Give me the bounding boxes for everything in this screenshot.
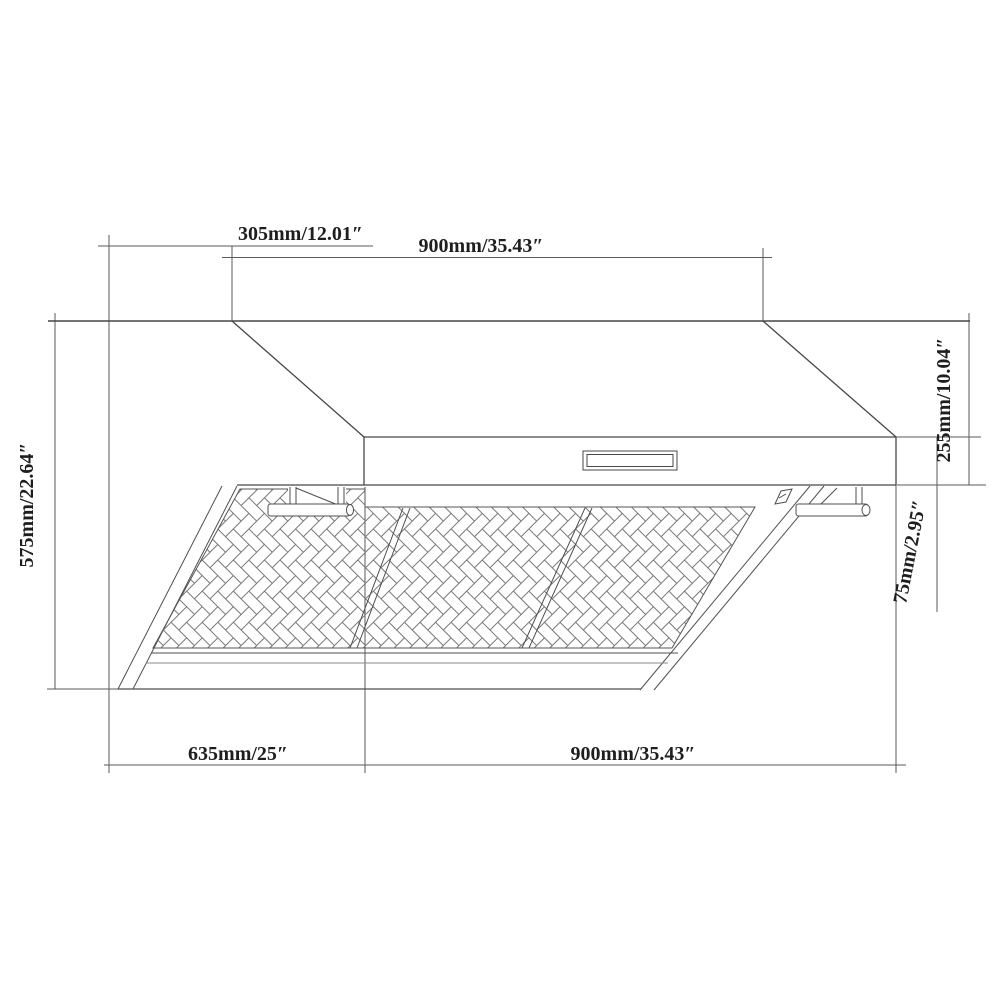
dimension-labels: 305mm/12.01″ 900mm/35.43″ 575mm/22.64″ 2… <box>16 223 955 765</box>
right-handle-rod-cap <box>862 505 870 516</box>
canopy-left-slope <box>232 321 364 437</box>
dim-label-bottom-depth: 635mm/25″ <box>188 743 288 765</box>
control-panel-cutout-inner <box>587 455 673 467</box>
right-bracket-posts <box>856 487 862 505</box>
dim-label-top-offset: 305mm/12.01″ <box>238 223 363 245</box>
right-handle-rod <box>796 504 868 516</box>
drawing-svg: 305mm/12.01″ 900mm/35.43″ 575mm/22.64″ 2… <box>0 0 1000 1000</box>
hood-bottom-perspective <box>118 486 824 690</box>
canopy-right-slope <box>763 321 896 437</box>
dim-label-top-width: 900mm/35.43″ <box>419 235 544 257</box>
left-handle-rod-cap <box>347 505 354 516</box>
dim-label-right-upper-height: 255mm/10.04″ <box>933 338 955 463</box>
dim-label-bottom-width: 900mm/35.43″ <box>571 743 696 765</box>
baffle-filter-field <box>153 489 755 648</box>
switch-lever-icon <box>775 489 792 504</box>
left-handle-rod <box>268 504 350 516</box>
range-hood-dimension-drawing: 305mm/12.01″ 900mm/35.43″ 575mm/22.64″ 2… <box>0 0 1000 1000</box>
control-panel-cutout-outer <box>583 451 677 470</box>
hood-outline <box>48 321 970 485</box>
right-bracket-brace <box>820 488 837 505</box>
dim-label-left-height: 575mm/22.64″ <box>16 443 38 568</box>
